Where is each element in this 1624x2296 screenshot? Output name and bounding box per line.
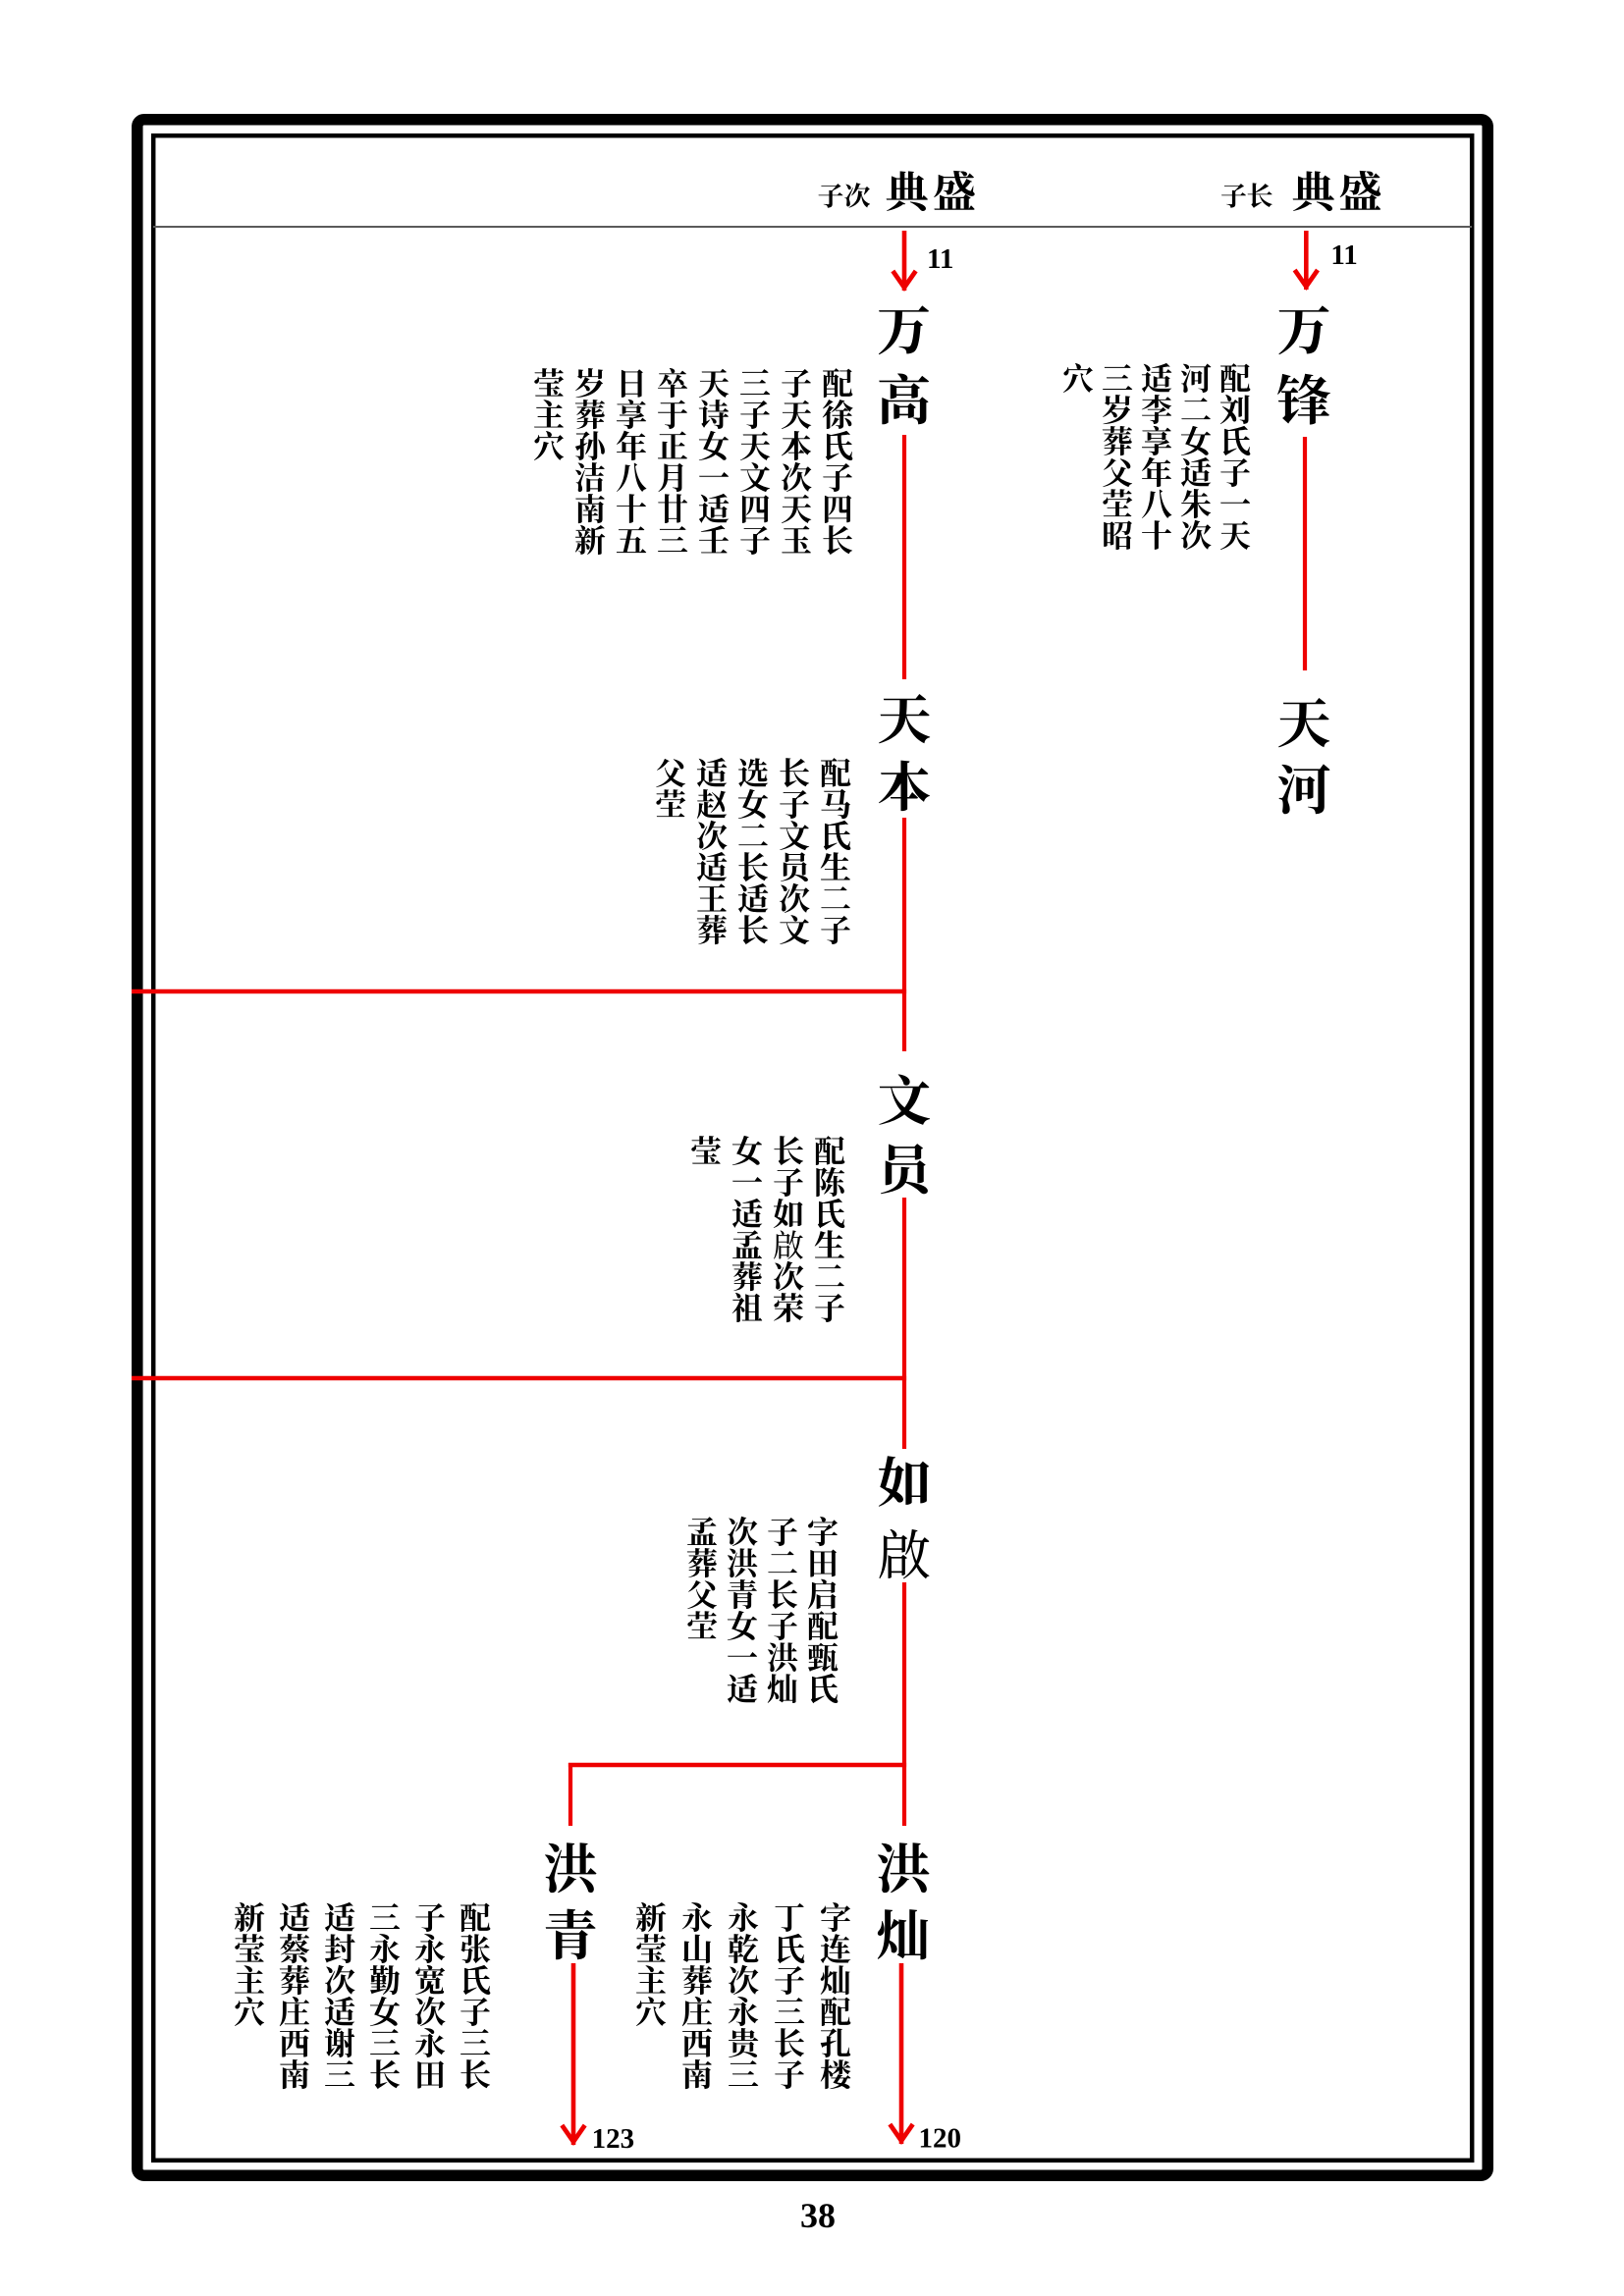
- svg-text:11: 11: [1330, 240, 1357, 271]
- svg-text:11: 11: [927, 243, 953, 275]
- svg-text:123: 123: [592, 2123, 635, 2155]
- svg-text:120: 120: [919, 2123, 962, 2155]
- svg-text:38: 38: [800, 2196, 836, 2235]
